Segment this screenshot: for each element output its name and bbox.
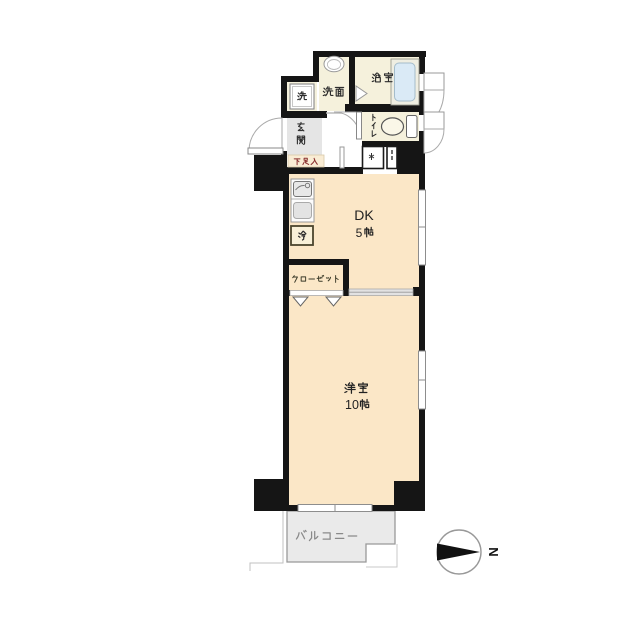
svg-text:10: 10 [345,398,359,412]
svg-text:5: 5 [356,226,363,240]
svg-text:N: N [486,547,501,556]
svg-text:DK: DK [354,207,374,223]
